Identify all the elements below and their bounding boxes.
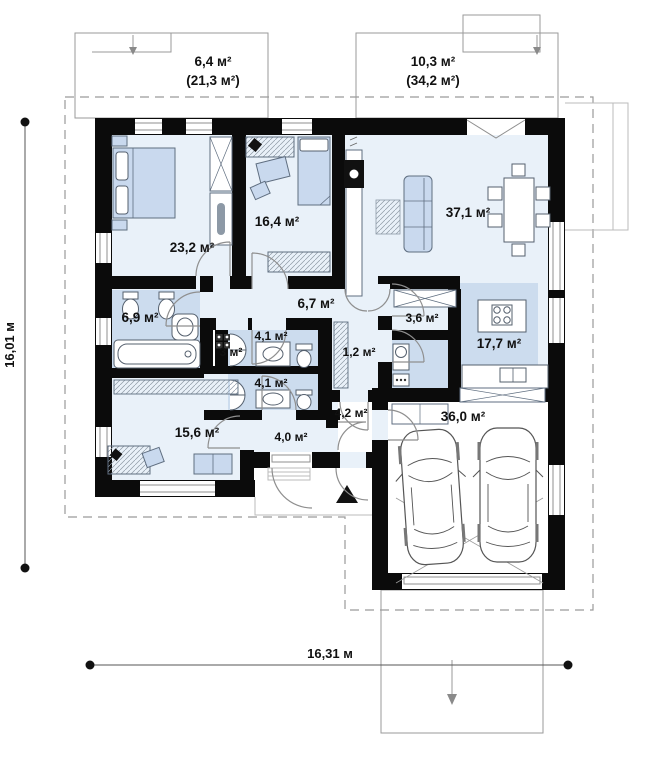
window <box>140 481 215 496</box>
sink <box>172 314 198 340</box>
window <box>549 465 564 515</box>
bedroom-third-label: 15,6 м² <box>175 425 220 440</box>
terrace-left-total: (21,3 м²) <box>186 73 240 88</box>
wardrobe-strip <box>114 380 238 394</box>
height-dimension-label: 16,01 м <box>2 322 17 368</box>
single-bed <box>298 137 330 205</box>
floor-plan-page: 16,01 м 16,31 м 6,4 м² (21,3 м²) 10,3 м²… <box>0 0 655 778</box>
dimension-height: 16,01 м <box>2 118 30 573</box>
toilet <box>296 390 312 410</box>
driveway-arrow-icon <box>447 694 457 705</box>
window <box>96 233 111 263</box>
entry-label: 4,0 м² <box>275 430 308 444</box>
vestibule-label: 4,2 м² <box>335 406 368 420</box>
dresser <box>194 454 232 474</box>
double-bed <box>113 148 175 218</box>
nightstand <box>112 136 127 146</box>
wardrobe-label: 1,2 м² <box>343 345 376 359</box>
bathroom-label: 6,9 м² <box>122 310 160 325</box>
pantry-shelving <box>394 290 456 307</box>
porch-floor <box>254 468 372 515</box>
car <box>473 428 543 562</box>
wc-top-label: 4,1 м² <box>255 329 288 343</box>
nightstand <box>112 220 127 230</box>
side-terrace-outline <box>565 103 628 230</box>
terrace-right-area: 10,3 м² <box>411 54 456 69</box>
living-room-label: 37,1 м² <box>446 205 491 220</box>
entrance-door <box>270 452 312 468</box>
wardrobe-strip <box>268 252 330 272</box>
kitchen-counter <box>462 365 548 388</box>
garage-gate <box>402 574 542 589</box>
bathtub <box>114 340 200 368</box>
corridor-label: 6,7 м² <box>298 296 336 311</box>
toilet <box>296 344 312 368</box>
kitchen-label: 17,7 м² <box>477 336 522 351</box>
boiler-equipment <box>393 344 409 386</box>
wardrobe <box>210 137 232 245</box>
window <box>186 119 212 134</box>
chair <box>488 187 502 200</box>
pantry-label: 3,6 м² <box>406 311 439 325</box>
vanity-sink <box>256 390 290 408</box>
dimension-width: 16,31 м <box>86 646 573 670</box>
storage-niche <box>460 388 545 402</box>
fireplace <box>344 160 364 188</box>
driveway-outline <box>381 590 543 733</box>
chair <box>512 244 525 256</box>
width-dimension-label: 16,31 м <box>307 646 353 661</box>
window <box>549 298 564 343</box>
window <box>96 318 111 345</box>
terrace-left-area: 6,4 м² <box>195 54 233 69</box>
kitchen-island <box>478 300 526 332</box>
chair <box>512 164 525 176</box>
bedroom-main-label: 23,2 м² <box>170 240 215 255</box>
window <box>282 119 312 134</box>
sofa <box>404 176 432 252</box>
chair <box>536 187 550 200</box>
floor-plan-canvas: 16,01 м 16,31 м 6,4 м² (21,3 м²) 10,3 м²… <box>0 0 655 778</box>
window <box>549 222 564 290</box>
window <box>135 119 162 134</box>
terrace-right-total: (34,2 м²) <box>406 73 460 88</box>
terrace-right-outline <box>356 15 558 118</box>
hall-label: 3 м² <box>220 345 243 359</box>
garage-shelf <box>392 404 448 424</box>
chair <box>536 214 550 227</box>
bedroom-second-label: 16,4 м² <box>255 214 300 229</box>
rug <box>376 200 400 234</box>
roof-slope-arrow-icon <box>129 47 137 55</box>
garage-label: 36,0 м² <box>441 409 486 424</box>
wc-bottom-label: 4,1 м² <box>255 376 288 390</box>
